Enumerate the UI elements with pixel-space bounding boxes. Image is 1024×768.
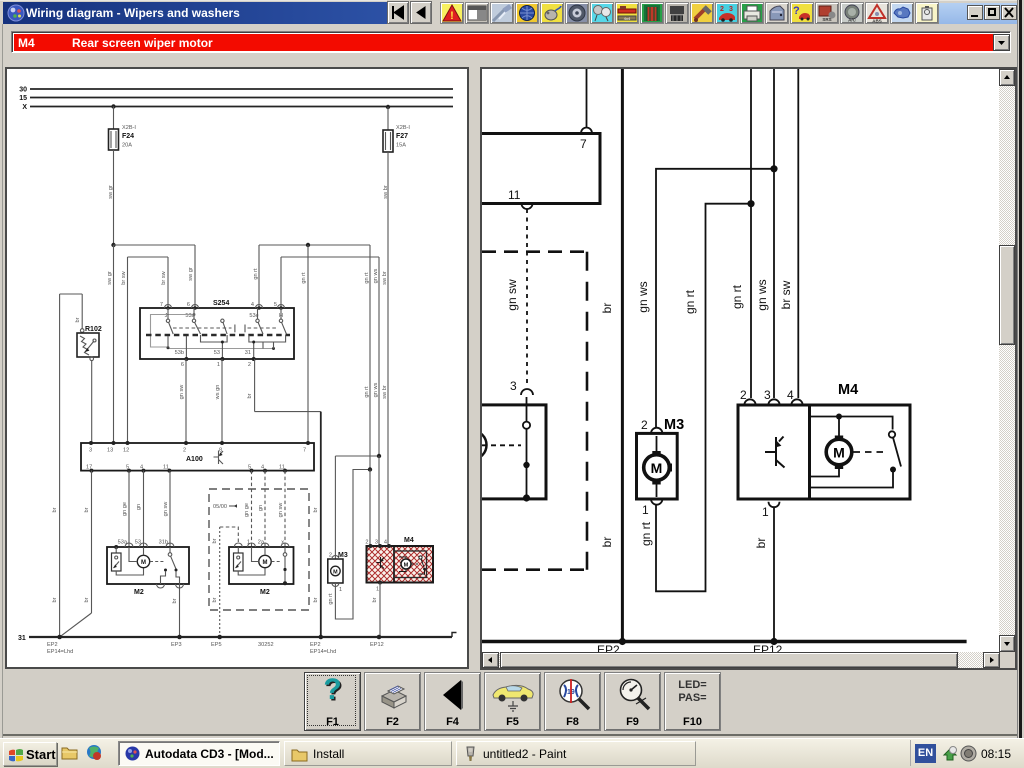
svg-text:M3: M3 [664,417,684,433]
svg-text:gn rt: gn rt [364,386,370,398]
svg-text:4x4: 4x4 [624,16,631,21]
svg-text:gn: gn [136,504,142,510]
svg-text:EP2: EP2 [310,642,321,648]
svg-text:gn rt: gn rt [364,272,370,284]
svg-text:15: 15 [19,95,27,102]
svg-text:M: M [833,445,845,461]
svg-text:sw br: sw br [382,385,388,399]
svg-text:sw br: sw br [383,185,389,199]
svg-text:17: 17 [86,465,92,471]
svg-text:5: 5 [248,465,251,471]
svg-text:SRS: SRS [822,17,831,22]
svg-text:M4: M4 [404,537,414,544]
svg-text:EP5: EP5 [211,642,222,648]
svg-text:3: 3 [375,540,378,546]
svg-text:X2B-I: X2B-I [122,125,136,131]
svg-text:M: M [333,570,338,576]
svg-text:31b: 31b [159,540,168,546]
svg-text:br: br [75,317,81,322]
svg-text:ws gn: ws gn [215,385,221,401]
svg-text:53: 53 [135,540,141,546]
svg-text:4: 4 [251,302,254,308]
svg-text:x: x [281,540,284,546]
svg-text:gn sw: gn sw [278,502,284,518]
svg-text:31: 31 [18,635,26,642]
svg-text:X2B-I: X2B-I [396,125,410,131]
svg-text:gn ws: gn ws [373,382,379,397]
svg-text:11: 11 [163,465,169,471]
svg-text:br: br [84,597,90,602]
svg-text:2: 2 [329,553,332,559]
svg-text:EP2: EP2 [597,643,620,652]
svg-text:7: 7 [160,302,163,308]
svg-text:EP14=Lhd: EP14=Lhd [47,649,73,655]
svg-text:1: 1 [376,587,379,593]
svg-text:br: br [172,598,178,603]
svg-text:gn rt: gn rt [253,268,259,280]
svg-text:2: 2 [365,540,368,546]
svg-text:1: 1 [217,362,220,368]
svg-text:M: M [263,560,268,566]
svg-text:J: J [165,313,168,319]
svg-text:sw gr: sw gr [188,267,194,281]
svg-text:M2: M2 [260,589,270,596]
svg-text:sw br: sw br [382,271,388,285]
svg-text:7: 7 [580,137,587,151]
svg-text:gn ge: gn ge [122,502,128,516]
svg-text:gn ws: gn ws [636,281,650,312]
svg-text:br: br [247,393,253,398]
svg-text:gn ws: gn ws [755,279,769,310]
svg-text:2: 2 [641,418,648,432]
svg-text:2: 2 [740,388,747,402]
svg-text:gn sw: gn sw [163,501,169,517]
svg-text:4: 4 [140,465,143,471]
svg-text:EP14=Lhd: EP14=Lhd [310,649,336,655]
svg-text:A/C: A/C [848,18,857,23]
svg-text:3: 3 [764,388,771,402]
svg-text:20A: 20A [122,143,132,149]
svg-text:M4: M4 [838,382,858,398]
svg-text:gn ge: gn ge [244,503,250,517]
svg-text:2: 2 [720,6,724,13]
svg-text:A100: A100 [186,456,203,463]
svg-text:6: 6 [181,362,184,368]
svg-text:M2: M2 [134,589,144,596]
svg-text:br: br [52,597,58,602]
svg-text:2: 2 [248,362,251,368]
svg-text:5: 5 [126,465,129,471]
svg-text:1: 1 [247,540,250,546]
svg-text:EP12: EP12 [370,642,384,648]
svg-text:31: 31 [245,350,251,356]
svg-text:gn: gn [258,505,264,511]
svg-text:sw gr: sw gr [108,185,114,199]
svg-text:53b: 53b [175,350,184,356]
svg-text:br: br [52,507,58,512]
svg-text:M3: M3 [338,552,348,559]
svg-text:6: 6 [187,302,190,308]
svg-text:br sw: br sw [121,270,127,284]
svg-text:12: 12 [123,448,129,454]
svg-text:2a: 2a [258,540,265,546]
svg-text:?: ? [793,5,800,17]
svg-text:M: M [404,563,409,569]
svg-text:gn sw: gn sw [505,279,519,311]
svg-text:EP3: EP3 [171,642,182,648]
svg-text:1: 1 [339,587,342,593]
svg-text:11: 11 [279,465,285,471]
svg-text:ABS: ABS [872,19,882,24]
svg-text:2: 2 [183,448,186,454]
svg-text:br: br [600,537,614,548]
svg-text:11: 11 [508,188,521,202]
svg-text:05/00: 05/00 [213,504,227,510]
svg-text:br: br [372,597,378,602]
svg-text:7: 7 [303,448,306,454]
svg-text:30: 30 [19,87,27,94]
svg-text:gn rt: gn rt [301,272,307,284]
svg-text:4: 4 [787,388,794,402]
svg-text:br sw: br sw [161,270,167,284]
svg-text:br: br [84,507,90,512]
svg-text:S254: S254 [213,300,229,307]
svg-text:X: X [22,104,27,111]
svg-text:gn rt: gn rt [639,521,653,546]
svg-text:4: 4 [384,540,387,546]
svg-text:F24: F24 [122,133,134,140]
svg-text:53: 53 [214,350,220,356]
svg-text:br: br [212,597,218,602]
svg-text:br: br [754,538,768,549]
svg-text:3: 3 [510,379,517,393]
svg-text:gn ws: gn ws [373,268,379,283]
svg-text:br: br [212,538,218,543]
svg-text:M: M [141,560,146,566]
svg-text:4: 4 [261,465,264,471]
svg-text:15A: 15A [396,143,406,149]
svg-text:3: 3 [89,448,92,454]
svg-text:30252: 30252 [258,642,274,648]
svg-text:13: 13 [107,448,113,454]
svg-text:1: 1 [642,503,649,517]
svg-text:53a: 53a [118,540,128,546]
svg-text:R102: R102 [85,326,102,333]
svg-text:gn sw: gn sw [179,384,185,400]
svg-text:1: 1 [762,505,769,519]
svg-text:!: ! [450,10,454,22]
svg-text:sw gr: sw gr [107,271,113,285]
svg-text:3: 3 [729,6,733,13]
svg-text:EP12: EP12 [753,643,783,652]
svg-text:br: br [313,597,319,602]
svg-text:F27: F27 [396,133,408,140]
svg-text:br sw: br sw [779,280,793,309]
svg-text:EP2: EP2 [47,642,58,648]
svg-text:br: br [600,303,614,314]
svg-text:gn rt: gn rt [328,593,334,605]
svg-text:gn rt: gn rt [730,284,744,309]
svg-text:M: M [651,460,663,476]
svg-text:5: 5 [274,302,277,308]
svg-text:br: br [313,507,319,512]
svg-text:gn rt: gn rt [683,289,697,314]
